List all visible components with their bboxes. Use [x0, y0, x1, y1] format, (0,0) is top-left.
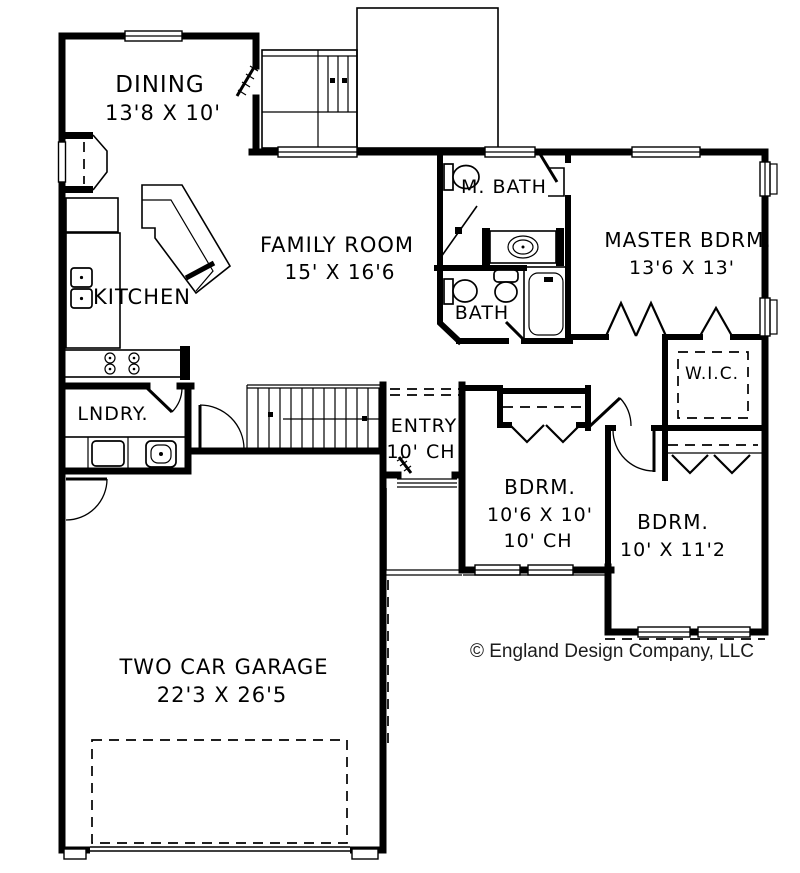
dining-deck-door: [237, 64, 258, 96]
garage-door: [64, 740, 378, 859]
garage-door-dashed-outline: [92, 740, 347, 843]
hall-door: [200, 405, 244, 449]
master-bedroom-dims: 13'6 X 13': [629, 257, 735, 279]
dining-bay-window: [59, 132, 108, 193]
floor-plan-drawing: DINING 13'8 X 10' KITCHEN FAMILY ROOM 15…: [0, 0, 800, 873]
bedroom2-label: BDRM.: [637, 510, 709, 534]
master-bath-window: [485, 147, 535, 157]
bathtub: [524, 267, 568, 341]
bedroom1-ceiling: 10' CH: [504, 530, 573, 552]
rear-deck-and-steps: [262, 8, 498, 148]
dining-top-window: [125, 31, 182, 41]
master-bedroom-label: MASTER BDRM.: [604, 228, 771, 252]
wic-label: W.I.C.: [685, 364, 739, 384]
dining-dims: 13'8 X 10': [105, 101, 221, 125]
refrigerator: [66, 198, 118, 232]
entry-plant-shelf: [390, 389, 460, 395]
bedroom1-label: BDRM.: [504, 475, 576, 499]
laundry-door: [147, 388, 182, 412]
bedroom2-dims: 10' X 11'2: [620, 539, 726, 561]
bedroom2-closet-bifold: [665, 453, 762, 473]
washer: [92, 441, 124, 466]
kitchen-sink: [71, 268, 92, 308]
master-bedroom-right-window-2: [760, 298, 777, 336]
bedroom1-closet-bifold: [510, 425, 580, 442]
bath-sink: [494, 270, 518, 302]
mbath-vanity: [482, 228, 564, 266]
floor-plan: DINING 13'8 X 10' KITCHEN FAMILY ROOM 15…: [0, 0, 800, 873]
cooktop: [105, 353, 139, 374]
kitchen-fixtures: [62, 185, 230, 377]
master-bedroom-top-window: [632, 147, 700, 157]
wic-door: [700, 308, 732, 336]
kitchen-island: [142, 185, 230, 293]
garage-entry-door: [66, 479, 107, 520]
master-bedroom-double-door: [606, 303, 666, 336]
copyright-text: © England Design Company, LLC: [470, 641, 754, 662]
bedroom1-door: [590, 398, 631, 426]
bath-toilet: [444, 279, 477, 304]
kitchen-peninsula: [62, 350, 182, 377]
master-bath-label: M. BATH: [461, 176, 547, 198]
laundry-label: LNDRY.: [77, 403, 148, 425]
wic-shelves: [678, 352, 748, 418]
bedroom2-door: [613, 430, 654, 472]
mbath-shower: [441, 206, 477, 257]
bath-door: [506, 322, 524, 340]
master-bedroom-right-window: [760, 162, 777, 196]
kitchen-label: KITCHEN: [93, 285, 191, 309]
entry-ceiling: 10' CH: [387, 441, 456, 463]
entry-label: ENTRY: [391, 415, 457, 437]
bedroom1-dims: 10'6 X 10': [487, 504, 593, 526]
family-room-window: [278, 147, 357, 157]
stairs: [247, 385, 383, 455]
family-room-dims: 15' X 16'6: [284, 260, 395, 284]
family-room-label: FAMILY ROOM: [260, 233, 414, 257]
garage-label: TWO CAR GARAGE: [118, 655, 328, 679]
laundry-fixtures: [64, 437, 186, 469]
bath-label: BATH: [455, 302, 509, 324]
garage-dims: 22'3 X 26'5: [157, 683, 287, 707]
dining-label: DINING: [115, 72, 205, 98]
